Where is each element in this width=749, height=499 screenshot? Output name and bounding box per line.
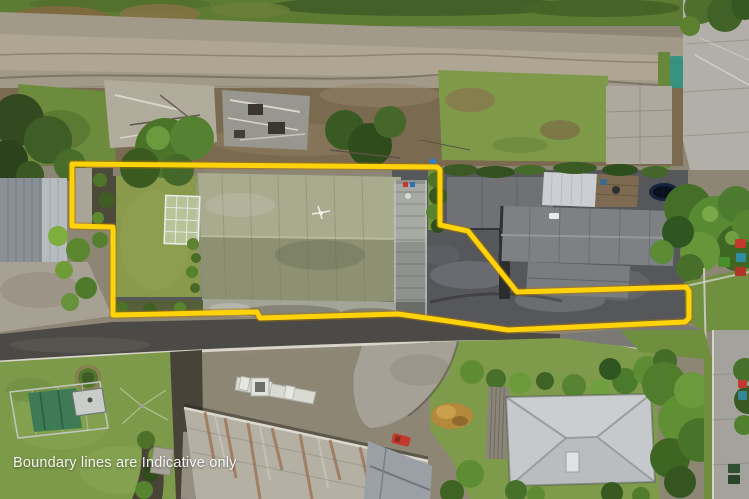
greenhouse [164, 195, 200, 244]
aerial-property-photo: Boundary lines are Indicative only [0, 0, 749, 499]
deck-strip [394, 180, 427, 330]
blue-planter [410, 182, 415, 187]
green-bin [728, 464, 740, 473]
concrete-pad [606, 86, 672, 164]
subject-house [196, 173, 401, 305]
green-bin [728, 475, 740, 484]
wrecked-shed [222, 90, 310, 150]
bbq-grill [612, 186, 620, 194]
red-bin [735, 239, 746, 248]
chimney [566, 452, 579, 472]
red-bin [735, 267, 746, 276]
side-path [75, 168, 92, 226]
boundary-disclaimer-text: Boundary lines are Indicative only [13, 455, 237, 471]
red-bin [738, 380, 747, 388]
aerial-photo-canvas [0, 0, 749, 499]
front-yard-left [0, 350, 204, 499]
red-planter [403, 182, 408, 187]
hip-roof-house [506, 394, 655, 486]
teal-bin [736, 253, 746, 262]
green-bin [718, 257, 730, 267]
white-carport-roof [542, 172, 597, 207]
teal-bin [738, 391, 747, 400]
roof-vent [549, 213, 559, 219]
